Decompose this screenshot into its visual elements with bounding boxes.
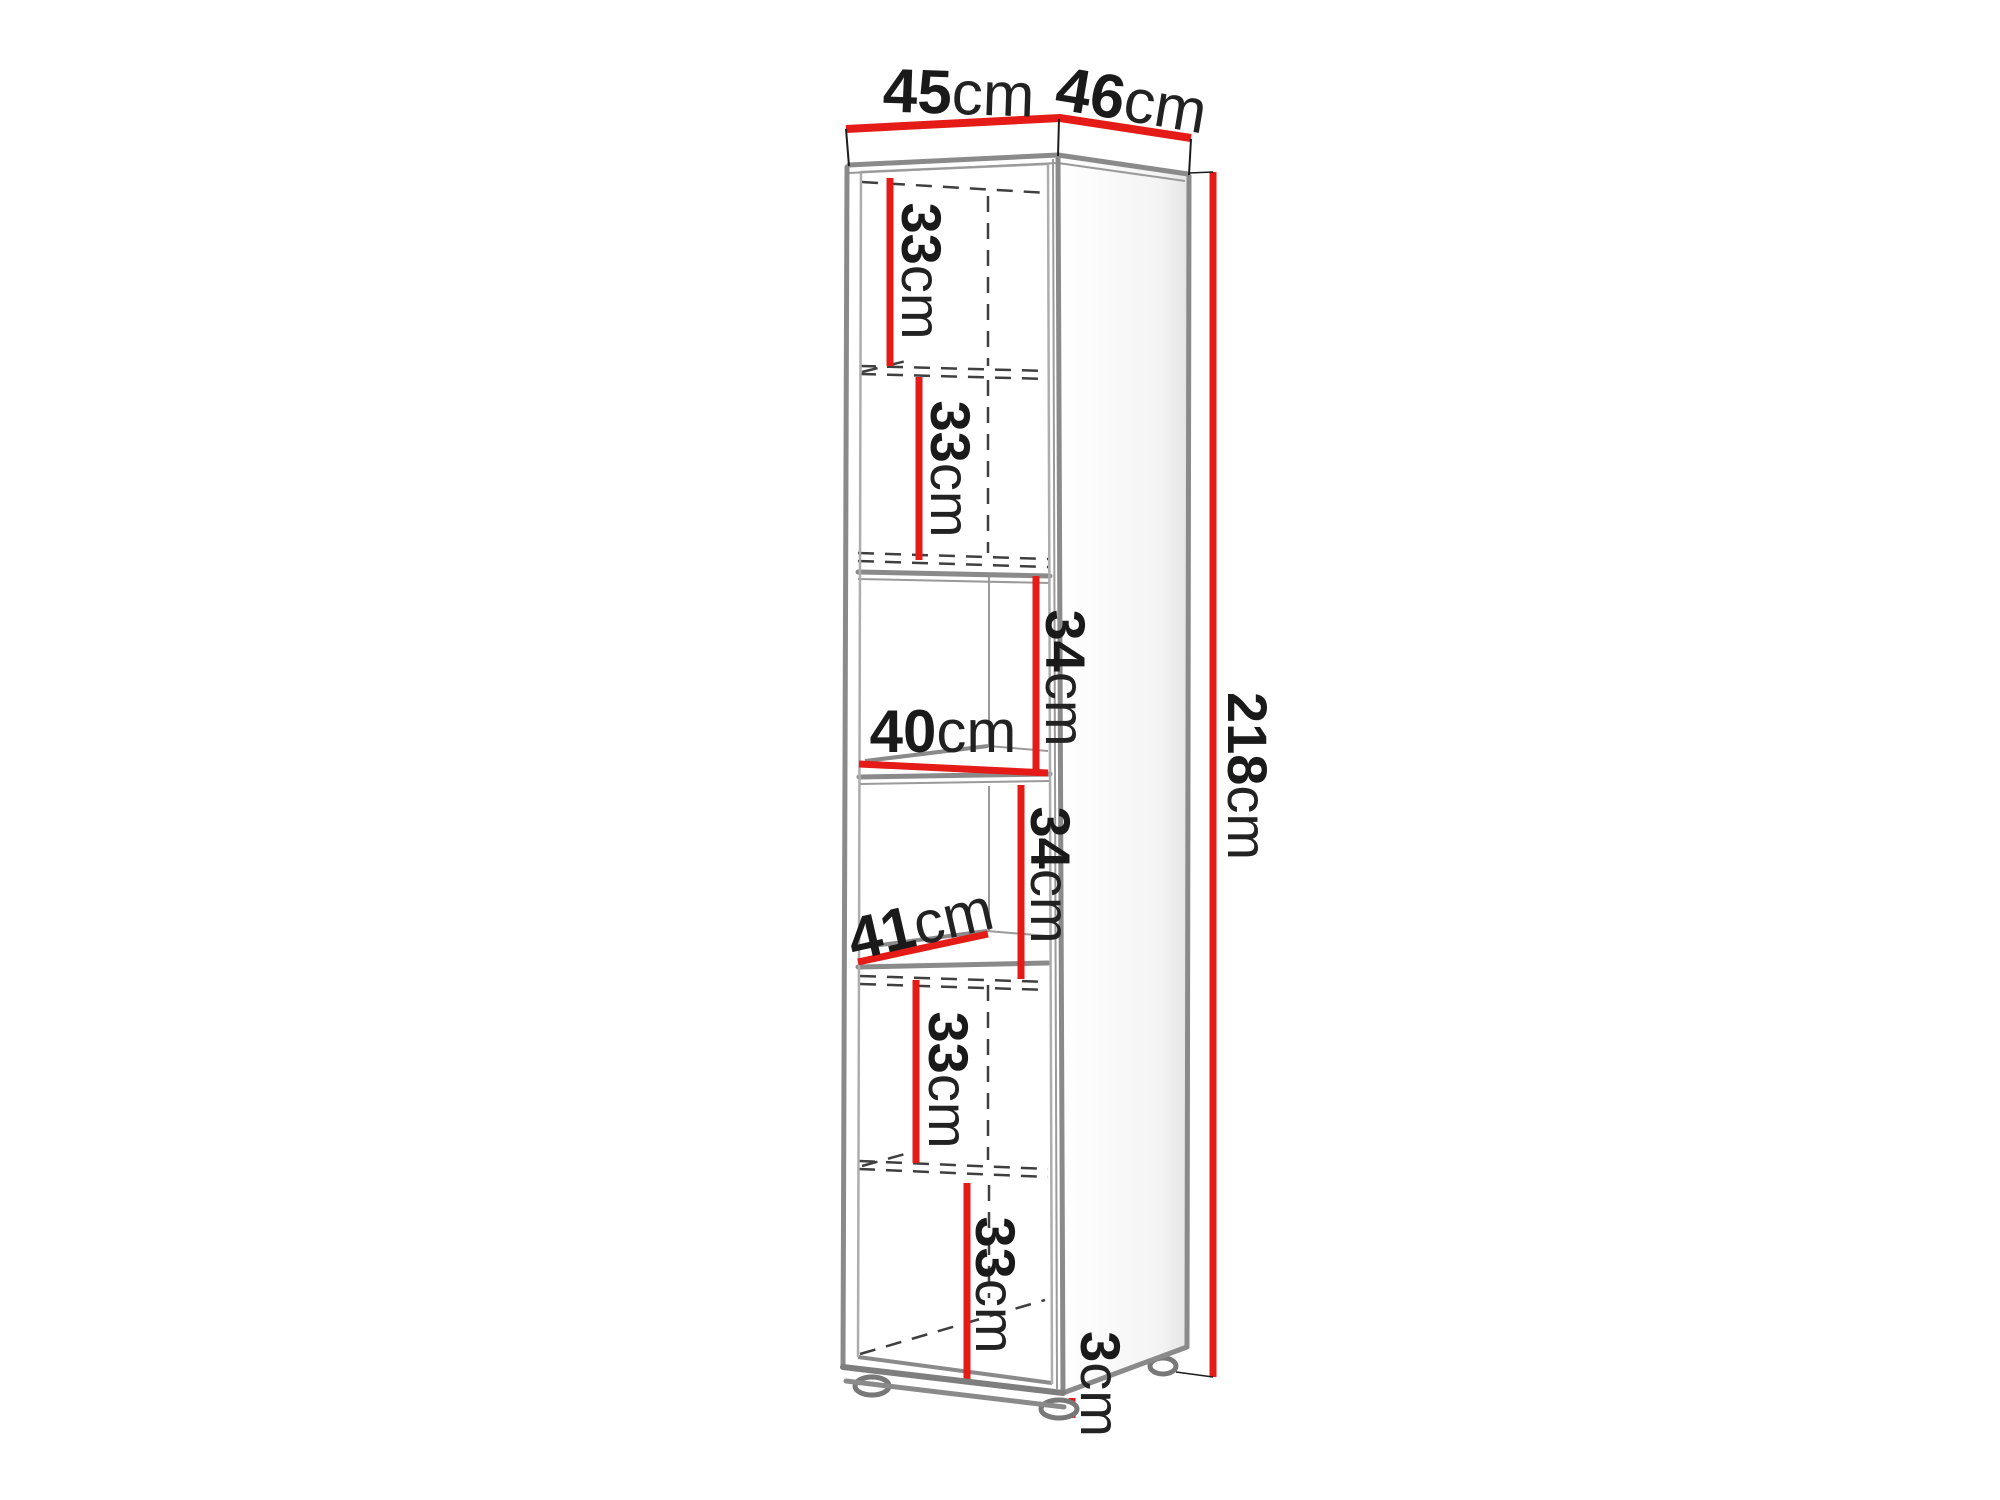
dim-label-compartment-5: 33cm — [917, 1012, 980, 1149]
shelf3-front-edge-inner — [860, 781, 1050, 784]
dim-label-niche-lower-depth: 41cm — [841, 875, 999, 973]
shelf2-dashed-top — [858, 553, 1048, 559]
niche-upper-top-edge — [858, 572, 1050, 576]
dim-label-niche-upper-depth: 40cm — [870, 698, 1017, 765]
height-extension-line-bottom — [1176, 1372, 1213, 1377]
dim-label-foot-height: 3cm — [1069, 1331, 1132, 1437]
shelf1-dashed-bottom — [860, 374, 1048, 379]
shelf5-dashed-top — [859, 1161, 1048, 1169]
niche-upper-top-edge-inner — [858, 579, 1050, 583]
cabinet-dimension-drawing: 45cm 46cm 218cm 33cm 33cm 34cm 40cm 34cm… — [0, 0, 2000, 1500]
cabinet-side-panel — [1058, 157, 1189, 1393]
cabinet-right-rear-edge — [1187, 176, 1189, 1347]
dim-line-niche-upper-depth — [859, 764, 1048, 773]
diagram-canvas: 45cm 46cm 218cm 33cm 33cm 34cm 40cm 34cm… — [0, 0, 2000, 1500]
dim-label-compartment-2: 33cm — [919, 401, 982, 538]
height-extension-line-top — [1189, 172, 1213, 173]
dim-label-total-height: 218cm — [1216, 692, 1279, 860]
dim-label-compartment-1: 33cm — [890, 203, 953, 340]
dim-label-compartment-6: 33cm — [964, 1217, 1027, 1354]
dim-label-niche-upper-height: 34cm — [1034, 610, 1097, 747]
shelf5-dashed-bottom — [859, 1169, 1048, 1177]
top-front-right-corner-edge — [1058, 119, 1059, 156]
dim-label-top-depth: 46cm — [1051, 54, 1212, 147]
dim-label-niche-lower-height: 34cm — [1019, 807, 1082, 944]
shelf5-depth-tick — [862, 1154, 905, 1166]
top-left-corner-edge — [846, 129, 849, 166]
shelf1-dashed-top — [860, 366, 1048, 371]
shelf4-dashed-bottom — [860, 984, 1048, 990]
cabinet-left-edge — [843, 167, 847, 1367]
dim-label-top-width: 45cm — [882, 56, 1036, 130]
shelf2-dashed-bottom — [858, 561, 1048, 567]
